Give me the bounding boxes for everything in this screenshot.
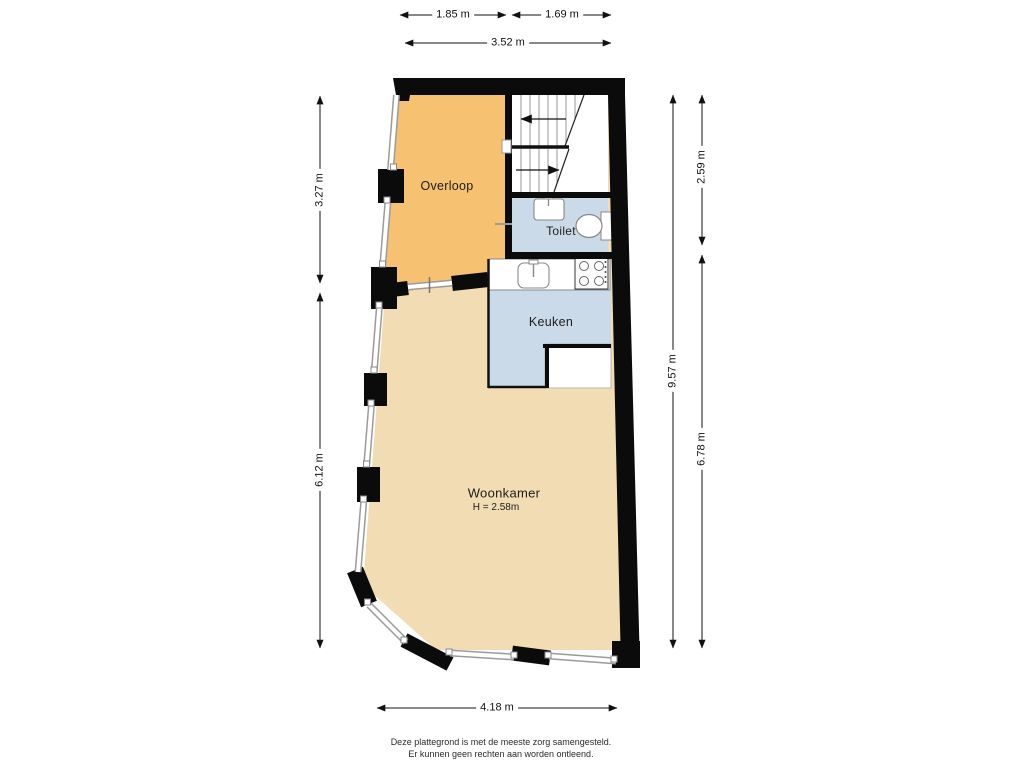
woonkamer-room-label: Woonkamer bbox=[468, 487, 541, 500]
dimension-right-upper: 2.59 m bbox=[696, 146, 709, 188]
dimension-right-lower: 6.78 m bbox=[696, 428, 709, 470]
dimension-top-right: 1.69 m bbox=[541, 9, 583, 22]
floorplan-drawing bbox=[0, 0, 1024, 768]
dimension-top-total: 3.52 m bbox=[487, 37, 529, 50]
overloop-stairs-wall bbox=[505, 95, 512, 259]
kitchen-cupboard bbox=[543, 344, 611, 388]
dimension-bottom: 4.18 m bbox=[476, 702, 518, 715]
disclaimer-line-2: Er kunnen geen rechten aan worden ontlee… bbox=[408, 750, 593, 759]
dimension-left-lower: 6.12 m bbox=[314, 449, 327, 491]
floorplan-page: Overloop Toilet Keuken Woonkamer H = 2.5… bbox=[0, 0, 1024, 768]
left-pier bbox=[378, 169, 404, 203]
woonkamer-height-label: H = 2.58m bbox=[473, 503, 519, 513]
overloop-room-label: Overloop bbox=[420, 180, 473, 193]
toilet-bottom-wall bbox=[505, 252, 613, 259]
toilet-room-label: Toilet bbox=[546, 225, 576, 237]
dimension-top-left: 1.85 m bbox=[432, 9, 474, 22]
left-pier bbox=[364, 373, 387, 406]
toilet-top-wall bbox=[505, 192, 613, 198]
stove-icon bbox=[575, 257, 608, 289]
toilet-bowl-icon bbox=[576, 212, 615, 240]
stairs-wall-notch bbox=[502, 140, 511, 153]
kitchen-sink-icon bbox=[518, 260, 549, 288]
dimension-right-total: 9.57 m bbox=[667, 350, 680, 392]
dimension-left-upper: 3.27 m bbox=[314, 169, 327, 211]
disclaimer-line-1: Deze plattegrond is met de meeste zorg s… bbox=[391, 738, 612, 747]
keuken-room-label: Keuken bbox=[529, 316, 573, 329]
stairs-floor bbox=[512, 95, 608, 192]
toilet-sink-icon bbox=[534, 195, 564, 220]
top-wall bbox=[393, 78, 625, 95]
